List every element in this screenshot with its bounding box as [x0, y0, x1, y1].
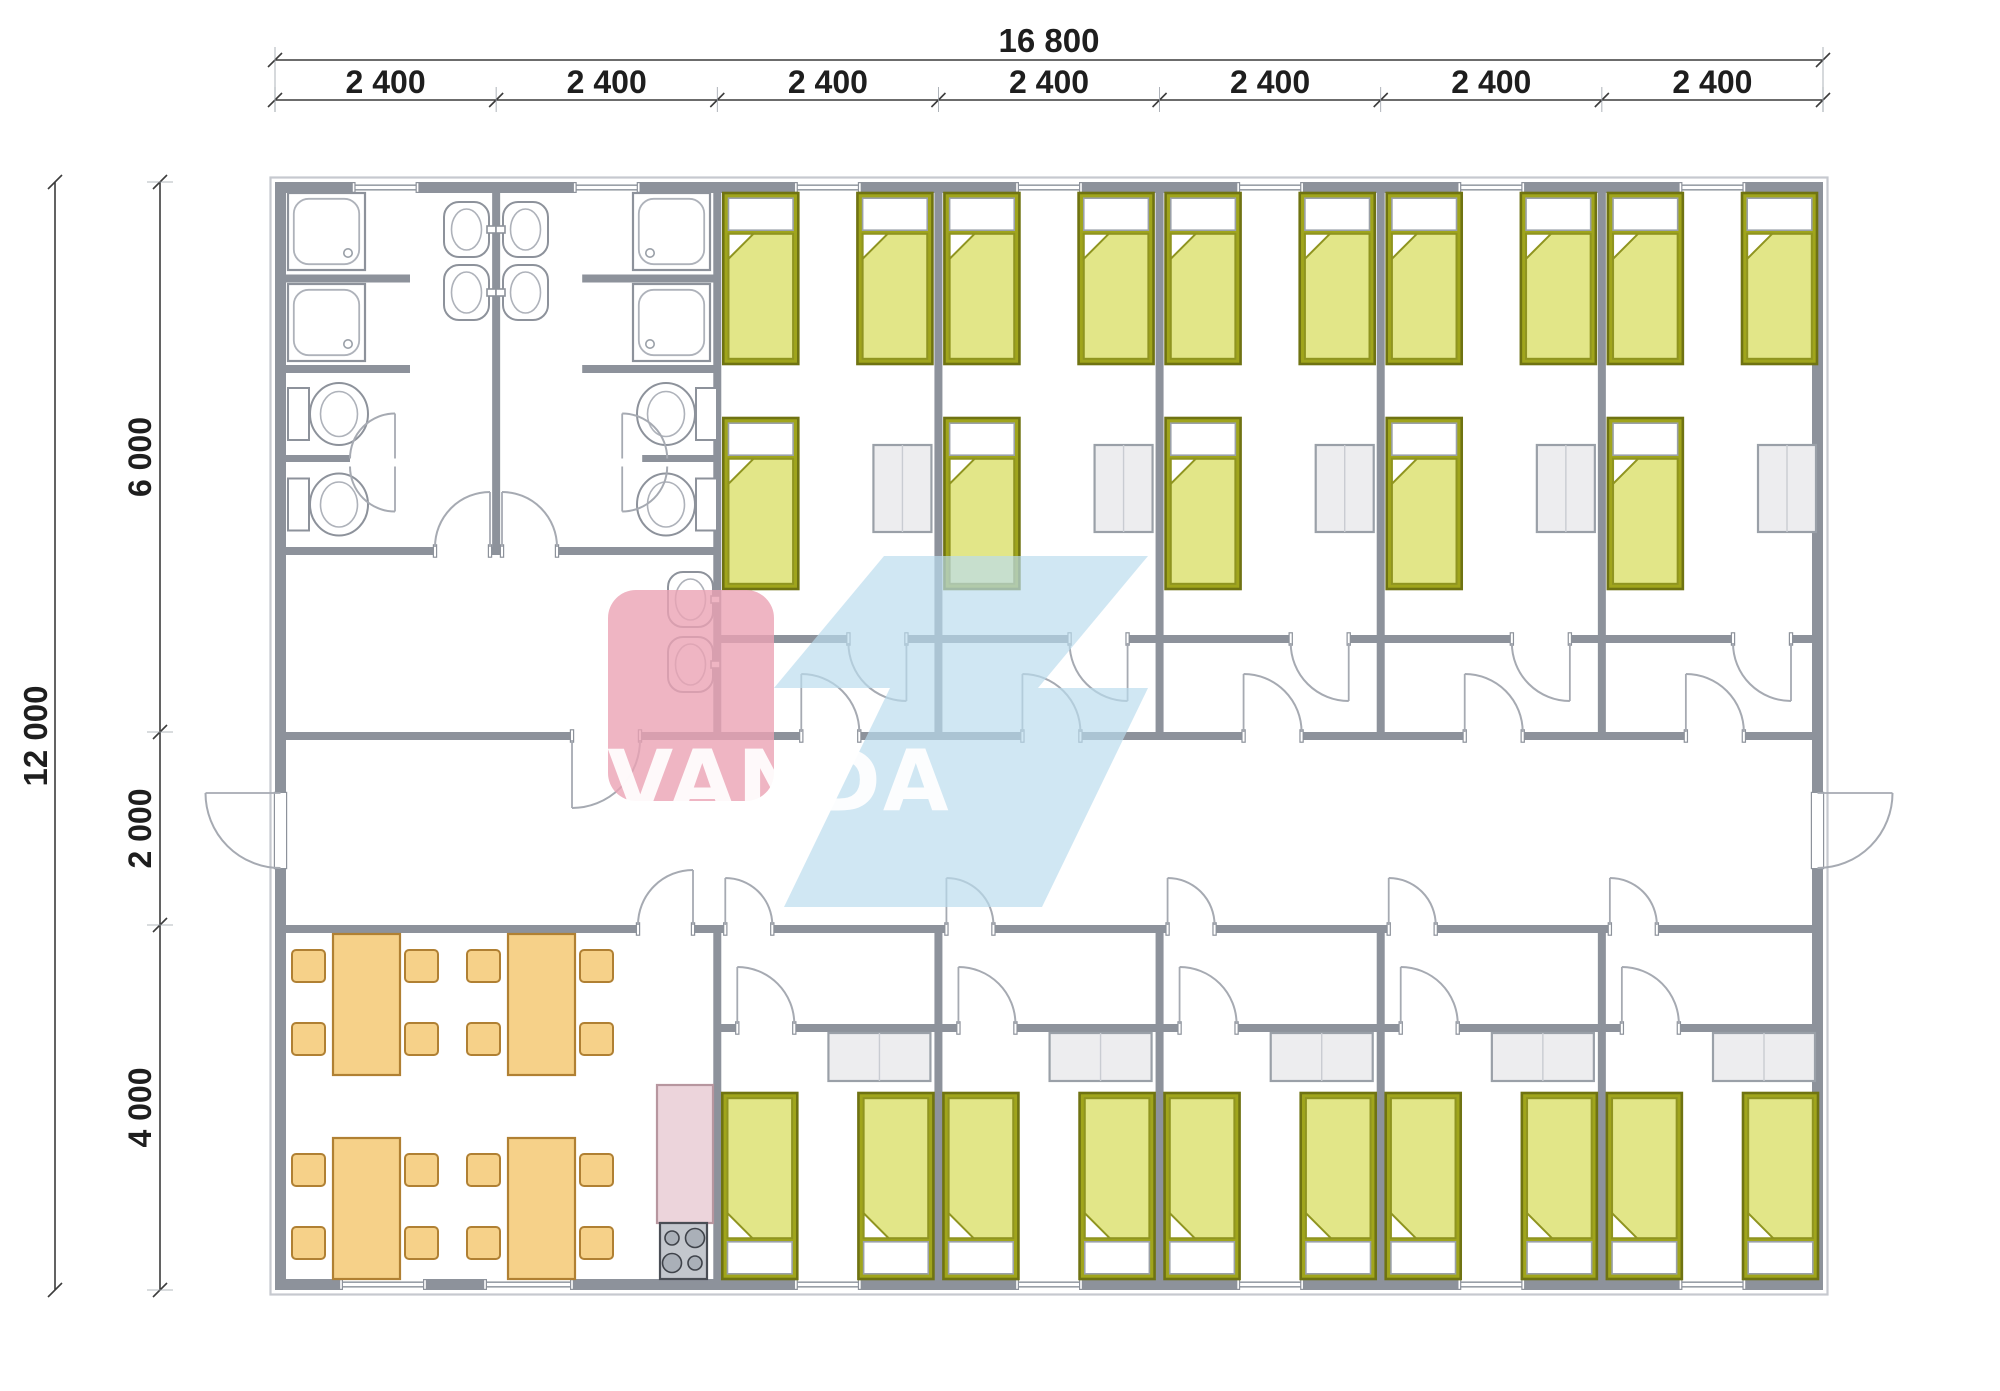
door-arc: [1686, 674, 1744, 732]
dim-overall-width: 16 800: [999, 22, 1100, 59]
bed-pillow: [1748, 1242, 1813, 1274]
door-opening: [502, 546, 557, 555]
dim-module-7: 2 400: [1672, 64, 1752, 100]
door-opening: [946, 924, 993, 933]
bed-pillow: [949, 1242, 1014, 1274]
door-arc: [638, 870, 693, 925]
window-jamb: [1458, 1280, 1461, 1290]
window-symbol: [796, 1279, 860, 1290]
wall: [492, 193, 500, 547]
bed-pillow: [950, 198, 1015, 230]
door-arc: [737, 967, 794, 1024]
toilet-tank: [696, 388, 717, 440]
bed-pillow: [1084, 198, 1149, 230]
shower-symbol: [288, 193, 365, 270]
door-arc: [1180, 967, 1237, 1024]
wall: [286, 275, 410, 283]
door-opening: [725, 924, 772, 933]
door-arc: [1465, 674, 1523, 732]
window-symbol: [1238, 182, 1302, 193]
chair-symbol: [467, 950, 500, 982]
dim-module-6: 2 400: [1451, 64, 1531, 100]
window-symbol: [1459, 1279, 1523, 1290]
chair-symbol: [467, 1154, 500, 1186]
dining-table-symbol: [508, 1138, 575, 1279]
door-opening: [1733, 634, 1791, 643]
chair-symbol: [292, 1227, 325, 1259]
wall: [286, 925, 1812, 933]
window-symbol: [575, 182, 639, 193]
sink-tap: [496, 226, 505, 233]
door-opening: [435, 546, 490, 555]
bed-blanket: [728, 234, 793, 359]
chair-symbol: [580, 950, 613, 982]
bed-pillow: [1085, 1242, 1150, 1274]
chair-symbol: [292, 1023, 325, 1055]
window-jamb: [571, 1280, 574, 1290]
window-jamb: [1458, 183, 1461, 193]
chair-symbol: [405, 1023, 438, 1055]
bed-blanket: [1748, 1098, 1813, 1238]
dim-bottom-depth: 4 000: [122, 1067, 158, 1147]
bed-blanket: [1171, 234, 1236, 359]
window-symbol: [341, 1279, 425, 1290]
bed-pillow: [1305, 198, 1370, 230]
bed-pillow: [1612, 1242, 1677, 1274]
bed-blanket: [1526, 234, 1591, 359]
dim-overall-depth: 12 000: [17, 686, 54, 787]
kitchen-counter-symbol: [657, 1085, 713, 1223]
door-arc: [1244, 674, 1302, 732]
dim-module-5: 2 400: [1230, 64, 1310, 100]
bed-pillow: [1613, 423, 1678, 455]
chair-symbol: [580, 1023, 613, 1055]
watermark-text: VANDA: [607, 733, 950, 832]
toilet-tank: [288, 479, 309, 531]
bed-pillow: [1527, 1242, 1592, 1274]
stove-burner: [686, 1229, 705, 1248]
shower-symbol: [288, 284, 365, 361]
wall: [1015, 1024, 1159, 1032]
bed-pillow: [1391, 1242, 1456, 1274]
wall: [1377, 193, 1385, 732]
window-jamb: [1301, 1280, 1304, 1290]
door-opening: [1465, 731, 1523, 740]
bed-pillow: [863, 198, 928, 230]
exterior-door-opening: [275, 793, 286, 868]
wall: [1156, 933, 1164, 1279]
window-jamb: [352, 183, 355, 193]
bed-pillow: [1526, 198, 1591, 230]
stove-burner: [665, 1231, 679, 1245]
bed-blanket: [1392, 234, 1457, 359]
wall: [1602, 1024, 1622, 1032]
watermark-blue-shape-top: [774, 556, 1148, 688]
window-jamb: [858, 1280, 861, 1290]
bed-pillow: [1306, 1242, 1371, 1274]
wall: [1156, 193, 1164, 732]
bed-pillow: [1747, 198, 1812, 230]
chair-symbol: [467, 1227, 500, 1259]
dim-top-depth: 6 000: [122, 417, 158, 497]
bed-blanket: [1306, 1098, 1371, 1238]
chair-symbol: [292, 950, 325, 982]
bed-pillow: [728, 423, 793, 455]
bed-blanket: [950, 234, 1015, 359]
wall: [1598, 193, 1606, 732]
window-symbol: [1459, 182, 1523, 193]
stove-burner: [688, 1256, 702, 1270]
window-jamb: [1679, 183, 1682, 193]
chair-symbol: [405, 1154, 438, 1186]
wall: [642, 455, 717, 462]
door-arc: [1291, 643, 1349, 701]
bed-pillow: [1392, 198, 1457, 230]
bed-blanket: [1085, 1098, 1150, 1238]
sink-tap: [487, 226, 496, 233]
door-arc: [958, 967, 1015, 1024]
wall: [934, 933, 942, 1279]
bed-pillow: [1171, 198, 1236, 230]
bed-blanket: [949, 1098, 1014, 1238]
window-jamb: [794, 1280, 797, 1290]
bed-blanket: [1613, 459, 1678, 584]
door-opening: [1168, 924, 1215, 933]
window-jamb: [1522, 183, 1525, 193]
wall: [286, 455, 350, 462]
floor-plan-sheet: VANDA 16 800 2 400 2 400 2 400 2 400 2 4…: [0, 0, 2000, 1391]
window-jamb: [1080, 183, 1083, 193]
wall: [1458, 1024, 1602, 1032]
window-symbol: [796, 182, 860, 193]
door-opening: [1291, 634, 1349, 643]
window-jamb: [637, 183, 640, 193]
door-opening: [1244, 731, 1302, 740]
dim-module-2: 2 400: [567, 64, 647, 100]
window-symbol: [354, 182, 418, 193]
window-jamb: [1016, 183, 1019, 193]
window-jamb: [1016, 1280, 1019, 1290]
window-symbol: [1680, 1279, 1744, 1290]
chair-symbol: [405, 1227, 438, 1259]
dim-module-4: 2 400: [1009, 64, 1089, 100]
chair-symbol: [580, 1154, 613, 1186]
bed-blanket: [727, 1098, 792, 1238]
bed-pillow: [1171, 423, 1236, 455]
window-jamb: [1743, 1280, 1746, 1290]
wall: [1381, 1024, 1401, 1032]
window-jamb: [424, 1280, 427, 1290]
wall: [1377, 933, 1385, 1279]
chair-symbol: [405, 950, 438, 982]
door-arc: [1389, 878, 1436, 925]
wall: [1160, 1024, 1180, 1032]
dim-corridor-depth: 2 000: [122, 788, 158, 868]
bed-blanket: [1084, 234, 1149, 359]
bed-blanket: [864, 1098, 929, 1238]
exterior-door-opening: [1812, 793, 1823, 868]
dining-table-symbol: [333, 1138, 400, 1279]
sink-tap: [496, 289, 505, 296]
window-jamb: [573, 183, 576, 193]
chair-symbol: [292, 1154, 325, 1186]
wall: [1237, 1024, 1381, 1032]
door-arc: [1622, 967, 1679, 1024]
bed-pillow: [1613, 198, 1678, 230]
door-arc: [435, 492, 490, 547]
bed-blanket: [1391, 1098, 1456, 1238]
window-jamb: [858, 183, 861, 193]
door-opening: [1512, 634, 1570, 643]
wall: [1598, 933, 1606, 1279]
toilet-tank: [696, 479, 717, 531]
window-jamb: [1743, 183, 1746, 193]
door-opening: [1686, 731, 1744, 740]
wall: [713, 933, 721, 1279]
shower-symbol: [633, 284, 710, 361]
window-symbol: [1680, 182, 1744, 193]
bed-blanket: [863, 234, 928, 359]
wall: [275, 182, 286, 1290]
toilet-tank: [288, 388, 309, 440]
door-arc: [1512, 643, 1570, 701]
door-arc: [1610, 878, 1657, 925]
door-arc: [1818, 793, 1893, 868]
wall: [582, 275, 717, 283]
window-symbol: [1017, 182, 1081, 193]
bed-pillow: [1392, 423, 1457, 455]
dim-module-1: 2 400: [346, 64, 426, 100]
wall: [286, 365, 410, 373]
window-symbol: [485, 1279, 572, 1290]
bed-blanket: [1612, 1098, 1677, 1238]
bed-pillow: [1170, 1242, 1235, 1274]
window-symbol: [1017, 1279, 1081, 1290]
door-arc: [206, 793, 281, 868]
dining-table-symbol: [508, 934, 575, 1075]
floor-plan-drawing: VANDA 16 800 2 400 2 400 2 400 2 400 2 4…: [0, 0, 2000, 1391]
wall: [582, 365, 717, 373]
vanda-watermark: VANDA: [607, 556, 1148, 907]
dim-module-3: 2 400: [788, 64, 868, 100]
bed-blanket: [1170, 1098, 1235, 1238]
door-opening: [1610, 924, 1657, 933]
window-jamb: [484, 1280, 487, 1290]
door-arc: [1733, 643, 1791, 701]
door-opening: [638, 924, 693, 933]
bed-blanket: [1747, 234, 1812, 359]
bed-blanket: [1527, 1098, 1592, 1238]
bed-blanket: [1392, 459, 1457, 584]
wall: [1679, 1024, 1823, 1032]
bed-blanket: [1613, 234, 1678, 359]
window-jamb: [340, 1280, 343, 1290]
window-symbol: [1238, 1279, 1302, 1290]
chair-symbol: [580, 1227, 613, 1259]
dining-table-symbol: [333, 934, 400, 1075]
bed-pillow: [728, 198, 793, 230]
door-arc: [502, 492, 557, 547]
stove-burner: [663, 1254, 682, 1273]
window-jamb: [1679, 1280, 1682, 1290]
door-arc: [1401, 967, 1458, 1024]
window-jamb: [1237, 183, 1240, 193]
bed-pillow: [950, 423, 1015, 455]
window-jamb: [794, 183, 797, 193]
sink-tap: [487, 289, 496, 296]
shower-symbol: [633, 193, 710, 270]
door-opening: [1389, 924, 1436, 933]
window-jamb: [1522, 1280, 1525, 1290]
bed-pillow: [864, 1242, 929, 1274]
door-arc: [1168, 878, 1215, 925]
bed-pillow: [727, 1242, 792, 1274]
window-jamb: [416, 183, 419, 193]
window-jamb: [1080, 1280, 1083, 1290]
bed-blanket: [1171, 459, 1236, 584]
wall: [794, 1024, 938, 1032]
window-jamb: [1301, 183, 1304, 193]
wall: [938, 1024, 958, 1032]
door-arc: [725, 878, 772, 925]
bed-blanket: [1305, 234, 1370, 359]
window-jamb: [1237, 1280, 1240, 1290]
bed-blanket: [728, 459, 793, 584]
chair-symbol: [467, 1023, 500, 1055]
wall: [717, 1024, 737, 1032]
